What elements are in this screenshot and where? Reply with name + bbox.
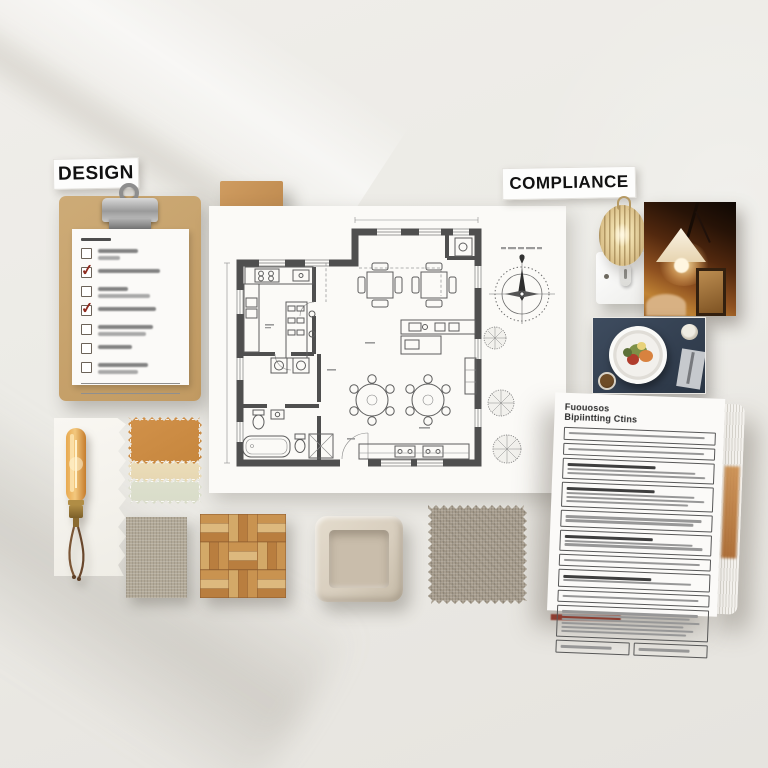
blurred-text-line (98, 345, 132, 349)
floor-plan-paper (209, 206, 566, 493)
checkbox-checked (81, 305, 92, 316)
blurred-text-line (98, 370, 138, 374)
checklist (81, 248, 180, 374)
checkbox-empty (81, 286, 92, 297)
blurred-text-line (98, 363, 148, 367)
fabric-swatch-sage (128, 479, 202, 504)
checklist-item (81, 324, 180, 336)
booklet-section (564, 427, 716, 445)
mirror (696, 268, 726, 316)
checkbox-empty (81, 362, 92, 373)
blurred-text-line (98, 269, 160, 273)
screw-icon (604, 274, 609, 279)
jar (598, 372, 616, 390)
checklist-item (81, 343, 180, 354)
blurred-text-line (564, 559, 700, 566)
salt-bowl (681, 324, 698, 340)
plated-dish-photo (592, 317, 706, 394)
booklet-section (562, 458, 715, 485)
food-garnish (637, 342, 646, 350)
checkbox-empty (81, 248, 92, 259)
food-garnish (639, 350, 653, 362)
lamp-table (646, 294, 686, 316)
fabric-swatch-camel (128, 417, 202, 464)
fabric-swatch-stack (128, 417, 202, 505)
booklet-section (559, 529, 712, 556)
blurred-text-line (98, 294, 150, 298)
wall-lamp-photo (644, 202, 736, 316)
blurred-text-line (98, 256, 120, 260)
lamp-bulb (674, 258, 689, 273)
blurred-text (98, 267, 160, 273)
checklist-item (81, 267, 180, 278)
parquet-wood-sample (200, 514, 286, 598)
checklist-header (81, 238, 111, 241)
checklist-item (81, 286, 180, 298)
lamp-chain (695, 211, 711, 243)
design-label-text: DESIGN (58, 162, 134, 186)
round-tables (350, 375, 450, 425)
checklist-item (81, 248, 180, 260)
blurred-text-line (563, 579, 691, 586)
compliance-booklet: Fuouosos Bipiintting Ctins (547, 392, 745, 623)
compliance-label-text: COMPLIANCE (509, 172, 629, 194)
blurred-text (98, 305, 156, 311)
blurred-text-line (98, 249, 138, 253)
booklet-footer-box (555, 640, 629, 655)
checklist-item (81, 362, 180, 374)
compass-rose-icon (489, 247, 555, 324)
checklist-paper (72, 229, 189, 385)
floor-plan-drawing (209, 206, 566, 493)
fabric-swatch-cream (128, 460, 202, 482)
booklet-title: Fuouosos Bipiintting Ctins (564, 402, 717, 428)
blurred-text-line (98, 325, 153, 329)
booklet-footer (555, 640, 707, 658)
door-arcs (275, 302, 368, 459)
blurred-text (98, 343, 132, 349)
parquet-pattern (200, 514, 286, 598)
booklet-section (560, 510, 713, 532)
linen-swatch (126, 517, 187, 598)
checkbox-empty (81, 324, 92, 335)
counter-fixtures (401, 320, 476, 394)
blurred-text (98, 248, 138, 260)
booklet-cover: Fuouosos Bipiintting Ctins (547, 392, 725, 616)
booklet-sections (556, 427, 716, 643)
upholstered-tray (315, 516, 403, 602)
blurred-text-line (98, 307, 156, 311)
checkbox-checked (81, 267, 92, 278)
blurred-text-line (98, 332, 146, 336)
signature-line (81, 383, 180, 384)
plants (484, 327, 521, 463)
tube-bulb-sconce (60, 424, 104, 584)
blurred-text-line (561, 645, 612, 649)
switch-icon (620, 264, 631, 286)
signature-line (81, 393, 180, 394)
woven-textile-swatch (428, 505, 527, 604)
booklet-section (558, 569, 711, 592)
bottom-counter (359, 444, 469, 459)
blurred-text-line (568, 448, 704, 455)
blurred-text-line (563, 595, 699, 602)
signature-lines (81, 383, 180, 394)
blurred-text (98, 362, 148, 374)
clipboard (59, 196, 201, 401)
blurred-text-line (98, 287, 128, 291)
booklet-section (561, 482, 714, 513)
blurred-text (98, 286, 150, 298)
booklet-section (556, 605, 709, 643)
rattan-pendant-lamp (599, 205, 646, 266)
checkbox-empty (81, 343, 92, 354)
food-garnish (623, 348, 632, 357)
compliance-label: COMPLIANCE (502, 166, 637, 200)
booklet-footer-box (633, 643, 707, 658)
checklist-item (81, 305, 180, 316)
tray-inner (329, 530, 389, 588)
page-edge-photo (721, 466, 740, 559)
mood-board: DESIGN (0, 0, 768, 768)
blurred-text-line (569, 432, 705, 439)
blurred-text-line (639, 648, 690, 652)
windows (236, 228, 482, 468)
blurred-text (98, 324, 153, 336)
